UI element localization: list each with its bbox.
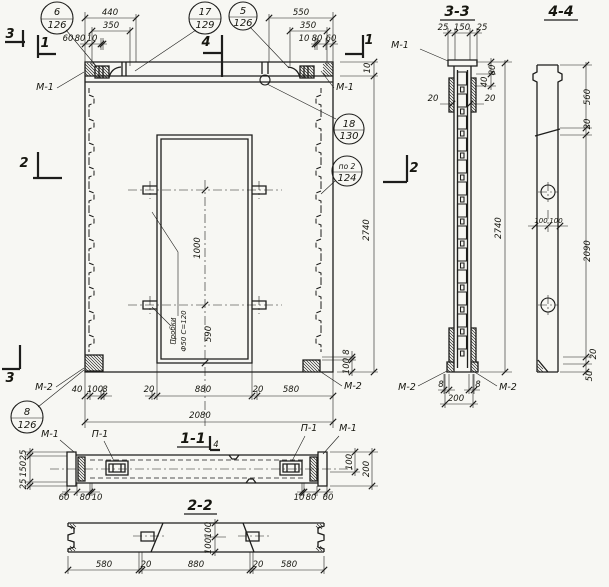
label-m1-topleft: М-1 bbox=[36, 82, 54, 93]
s22-dim-580l: 580 bbox=[96, 560, 112, 570]
dim-10-tr: 10 bbox=[299, 34, 310, 44]
s44-hole-centerlines bbox=[538, 182, 558, 315]
dim-10-tl: 10 bbox=[87, 34, 98, 44]
decor-path bbox=[85, 63, 95, 76]
decor-path bbox=[303, 360, 320, 372]
s11-dim-100: 100 bbox=[345, 454, 355, 470]
callout-18-top: 18 bbox=[343, 119, 356, 130]
callout-124-bottom: 124 bbox=[337, 173, 356, 184]
decor-path bbox=[458, 72, 467, 356]
dim-550: 550 bbox=[293, 8, 309, 18]
decor-path bbox=[537, 364, 543, 372]
dim-80-tl: 80 bbox=[75, 34, 86, 44]
s33-dim-20l: 20 bbox=[428, 94, 439, 104]
callout-6-bottom: 126 bbox=[47, 20, 66, 31]
section-2-2: 2-2 100 100 580 20 880 20 580 bbox=[68, 498, 324, 574]
s11-dim-150: 150 bbox=[19, 461, 29, 477]
dim-100-br: 100 bbox=[342, 358, 352, 374]
label-m2-bottomright: М-2 bbox=[344, 381, 362, 392]
s11-label-m1-right: М-1 bbox=[339, 423, 357, 434]
label-m1-topright: М-1 bbox=[336, 82, 354, 93]
dim-100-bl: 100 bbox=[87, 385, 103, 395]
dim-60-tl: 60 bbox=[63, 34, 74, 44]
callout-8-bottom: 126 bbox=[17, 420, 36, 431]
s44-dim-560: 560 bbox=[583, 89, 593, 105]
decor-path bbox=[471, 362, 478, 372]
dim-350-right: 350 bbox=[300, 21, 316, 31]
s33-dim-8l: 8 bbox=[438, 380, 444, 390]
section-3-3: 3-3 25 150 25 20 20 40 80 8 8 200 2740 М… bbox=[391, 4, 517, 408]
s22-body bbox=[68, 523, 324, 552]
dim-2080: 2080 bbox=[189, 411, 211, 421]
cut-2-right: 2 bbox=[409, 161, 418, 176]
s33-dim-40: 40 bbox=[480, 77, 490, 88]
cut-3-topleft: 3 bbox=[5, 27, 14, 42]
cut-4-at-title: 4 bbox=[213, 440, 218, 450]
s22-dim-100a: 100 bbox=[204, 522, 214, 538]
callout-5-bottom: 126 bbox=[233, 18, 252, 29]
s33-dim-2740: 2740 bbox=[494, 217, 504, 239]
title-4-4: 4-4 bbox=[547, 4, 573, 20]
note-plugs-line1: Пробки bbox=[169, 317, 177, 345]
s44-dim-2090: 2090 bbox=[583, 240, 593, 262]
s22-dim-20l: 20 bbox=[141, 560, 152, 570]
dim-880-b: 880 bbox=[195, 385, 211, 395]
s11-label-p1-left: П-1 bbox=[92, 429, 109, 440]
title-3-3: 3-3 bbox=[444, 4, 469, 20]
label-m2-bottomleft: М-2 bbox=[35, 382, 53, 393]
s11-label-m1-left: М-1 bbox=[41, 429, 59, 440]
cut-1-topright: 1 bbox=[364, 33, 373, 48]
main-elevation: 440 350 60 80 10 550 350 10 80 60 10 274… bbox=[35, 8, 378, 428]
callout-17-top: 17 bbox=[199, 7, 212, 18]
decor-path bbox=[471, 78, 476, 112]
callout-17-bottom: 129 bbox=[195, 20, 214, 31]
decor-path bbox=[449, 328, 454, 362]
technical-drawing: 440 350 60 80 10 550 350 10 80 60 10 274… bbox=[0, 0, 609, 587]
dim-590: 590 bbox=[204, 326, 214, 342]
decor-path bbox=[323, 63, 333, 76]
s11-dim-200: 200 bbox=[362, 461, 372, 477]
title-2-2: 2-2 bbox=[187, 498, 212, 514]
note-plugs-line2: Ф50 С=120 bbox=[180, 310, 188, 352]
cut-3-bottomleft: 3 bbox=[5, 371, 14, 386]
s33-label-m2-right: М-2 bbox=[499, 382, 517, 393]
panel-outline bbox=[85, 62, 333, 372]
callout-124-top: по 2 bbox=[339, 162, 356, 171]
cut-2-left: 2 bbox=[19, 156, 28, 171]
s22-dim-880: 880 bbox=[188, 560, 204, 570]
s33-label-m2-left: М-2 bbox=[398, 382, 416, 393]
dim-2740-main: 2740 bbox=[362, 219, 372, 241]
s11-label-p1-right: П-1 bbox=[301, 423, 318, 434]
s44-dim-100b: 100 bbox=[549, 217, 563, 225]
dim-440: 440 bbox=[102, 8, 118, 18]
dim-350-left: 350 bbox=[103, 21, 119, 31]
main-leader-lines bbox=[38, 27, 342, 407]
dim-580-b: 580 bbox=[283, 385, 299, 395]
s44-dim-100a: 100 bbox=[534, 217, 548, 225]
title-1-1: 1-1 bbox=[180, 431, 205, 447]
s33-dim-80: 80 bbox=[488, 65, 498, 76]
callout-8-top: 8 bbox=[24, 407, 30, 418]
s33-label-m1: М-1 bbox=[391, 40, 409, 51]
decor-path bbox=[85, 355, 103, 371]
s11-dim-10l: 10 bbox=[92, 493, 103, 503]
s22-dim-580r: 580 bbox=[281, 560, 297, 570]
dim-1000: 1000 bbox=[193, 237, 203, 259]
dim-40-bl: 40 bbox=[72, 385, 83, 395]
dim-20-b1: 20 bbox=[144, 385, 155, 395]
section-4-4: 4-4 100 100 560 20 2090 20 50 bbox=[528, 4, 599, 381]
drawing-sheet: 440 350 60 80 10 550 350 10 80 60 10 274… bbox=[0, 0, 609, 587]
section-1-1: 1-1 25 150 25 60 80 10 10 80 60 100 200 … bbox=[19, 423, 378, 503]
s44-dim-20b: 20 bbox=[589, 349, 599, 360]
callout-6-top: 6 bbox=[54, 7, 60, 18]
callout-5-top: 5 bbox=[240, 6, 246, 17]
decor-path bbox=[89, 88, 94, 352]
decor-path bbox=[471, 328, 476, 362]
s33-dim-25a: 25 bbox=[438, 23, 449, 33]
cut-4-top: 4 bbox=[200, 35, 210, 50]
cut-1-topleft: 1 bbox=[40, 36, 49, 51]
s33-dim-200: 200 bbox=[448, 394, 464, 404]
s22-dim-100b: 100 bbox=[204, 538, 214, 554]
s33-dim-20r: 20 bbox=[485, 94, 496, 104]
dim-8-br: 8 bbox=[342, 349, 352, 355]
decor-path bbox=[447, 362, 454, 372]
callout-18-bottom: 130 bbox=[339, 131, 358, 142]
s44-dim-20a: 20 bbox=[583, 119, 593, 130]
decor-path bbox=[316, 88, 321, 352]
